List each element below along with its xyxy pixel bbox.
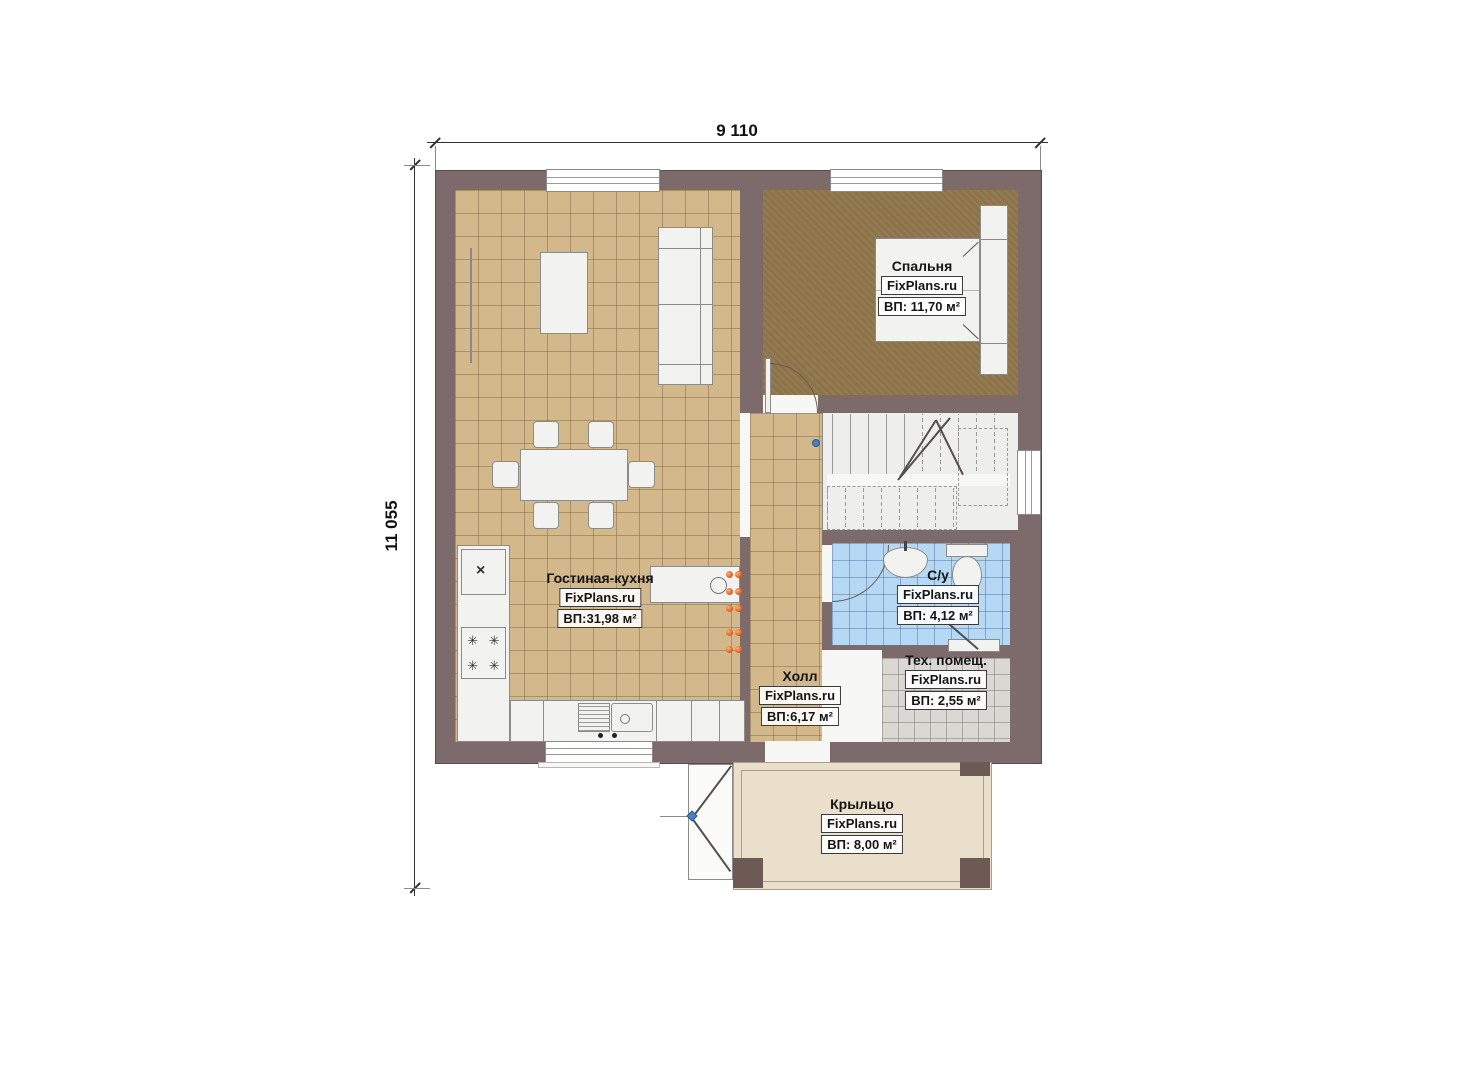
heating-riser-dot xyxy=(735,605,742,612)
room-label-living-kitchen: Гостиная-кухня FixPlans.ru ВП:31,98 м² xyxy=(546,570,653,628)
watermark: FixPlans.ru xyxy=(821,814,903,833)
chair xyxy=(628,461,655,488)
chair xyxy=(588,421,614,448)
bathroom-door-gap xyxy=(822,545,832,602)
dimension-width-label: 9 110 xyxy=(716,121,758,141)
watermark: FixPlans.ru xyxy=(881,276,963,295)
chair xyxy=(533,502,559,529)
room-area: ВП: 4,12 м² xyxy=(897,606,979,625)
room-label-bedroom: Спальня FixPlans.ru ВП: 11,70 м² xyxy=(878,258,966,316)
window-kitchen-bottom xyxy=(545,740,653,763)
stair-void-outline xyxy=(958,428,1008,506)
heating-riser-dot xyxy=(726,646,733,653)
floor-plan-canvas: 9 110 11 055 xyxy=(0,0,1474,1080)
room-label-bathroom: С/у FixPlans.ru ВП: 4,12 м² xyxy=(897,567,979,625)
coffee-table xyxy=(540,252,588,334)
witness-line xyxy=(435,146,436,170)
sofa xyxy=(658,227,713,385)
chair xyxy=(492,461,519,488)
heating-riser-dot xyxy=(726,588,733,595)
wall-living-bedroom xyxy=(740,190,763,413)
room-label-tech-room: Тех. помещ. FixPlans.ru ВП: 2,55 м² xyxy=(905,652,987,710)
watermark: FixPlans.ru xyxy=(897,585,979,604)
stove: ✳ ✳ ✳ ✳ xyxy=(461,627,506,679)
dimension-height-label: 11 055 xyxy=(382,500,402,551)
entrance-door-gap xyxy=(765,741,830,763)
heating-riser-dot xyxy=(726,571,733,578)
burner-icon: ✳ xyxy=(467,633,478,649)
fridge: × xyxy=(461,549,506,595)
witness-line xyxy=(404,165,430,166)
porch-pillar xyxy=(960,762,990,776)
faucet-icon xyxy=(904,541,907,551)
chair xyxy=(533,421,559,448)
faucet-dot xyxy=(612,733,617,738)
dimension-line-top xyxy=(427,142,1048,143)
wall-hall-bath xyxy=(822,602,832,650)
room-area: ВП: 11,70 м² xyxy=(878,297,966,316)
watermark: FixPlans.ru xyxy=(905,670,987,689)
fridge-icon: × xyxy=(476,562,485,580)
witness-line xyxy=(1040,146,1041,170)
room-label-hall: Холл FixPlans.ru ВП:6,17 м² xyxy=(759,668,841,726)
sink-drainboard xyxy=(578,703,610,732)
faucet-dot xyxy=(598,733,603,738)
dining-table xyxy=(520,449,628,501)
curtain-line xyxy=(470,248,472,363)
room-name: Спальня xyxy=(892,258,952,274)
dimension-line-left xyxy=(414,158,415,896)
room-area: ВП:6,17 м² xyxy=(761,707,839,726)
burner-icon: ✳ xyxy=(467,658,478,674)
stair-lower-outline xyxy=(827,486,957,530)
room-area: ВП:31,98 м² xyxy=(557,609,642,628)
burner-icon: ✳ xyxy=(489,658,500,674)
wall-bedroom-bottom xyxy=(818,395,1018,413)
window-sill xyxy=(538,762,660,768)
room-name: Гостиная-кухня xyxy=(546,570,653,586)
porch-pillar xyxy=(960,858,990,888)
heating-riser-dot xyxy=(735,646,742,653)
burner-icon: ✳ xyxy=(489,633,500,649)
room-name: С/у xyxy=(927,567,949,583)
level-marker xyxy=(812,439,820,447)
room-name: Крыльцо xyxy=(830,796,894,812)
stair-edge-line xyxy=(822,413,823,530)
heating-riser-dot xyxy=(726,605,733,612)
witness-line xyxy=(404,888,430,889)
heating-riser-dot xyxy=(735,571,742,578)
wall-stair-bath xyxy=(822,530,1018,543)
room-name: Холл xyxy=(782,668,817,684)
watermark: FixPlans.ru xyxy=(559,588,641,607)
heating-riser-dot xyxy=(726,629,733,636)
room-area: ВП: 2,55 м² xyxy=(905,691,987,710)
heating-riser-dot xyxy=(735,588,742,595)
window-living-top xyxy=(546,169,660,192)
porch-pillar xyxy=(733,858,763,888)
bed-headboard-nightstands xyxy=(980,205,1008,375)
chair xyxy=(588,502,614,529)
window-stair-right xyxy=(1017,450,1041,515)
watermark: FixPlans.ru xyxy=(759,686,841,705)
room-label-porch: Крыльцо FixPlans.ru ВП: 8,00 м² xyxy=(821,796,903,854)
opening-living-hall xyxy=(740,413,750,537)
room-name: Тех. помещ. xyxy=(905,652,987,668)
room-area: ВП: 8,00 м² xyxy=(821,835,903,854)
sink-basin xyxy=(611,703,653,732)
heating-riser-dot xyxy=(735,629,742,636)
window-bedroom-top xyxy=(830,169,943,192)
